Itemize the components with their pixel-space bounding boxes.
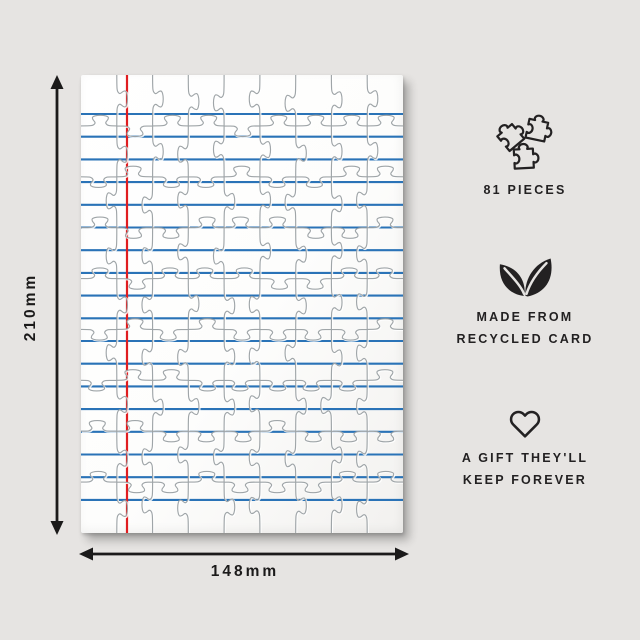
leaf-icon	[496, 256, 554, 299]
arrowhead-right	[395, 548, 409, 561]
arrowhead-up	[51, 75, 64, 89]
feature-piece-count: 81 PIECES	[437, 106, 613, 201]
cut-lines	[81, 75, 403, 533]
puzzle-product-image	[81, 75, 403, 533]
feature-text-line: KEEP FOREVER	[462, 469, 588, 491]
height-arrow	[45, 74, 69, 536]
feature-text-line: RECYCLED CARD	[457, 328, 594, 350]
feature-gift: A GIFT THEY'LL KEEP FOREVER	[437, 408, 613, 491]
feature-recycled: MADE FROM RECYCLED CARD	[437, 256, 613, 350]
cut-line-highlights	[82, 76, 403, 533]
height-dimension-label: 210mm	[22, 273, 40, 341]
puzzle-pieces-icon	[490, 106, 560, 172]
jigsaw-notebook-paper	[81, 75, 403, 533]
arrowhead-left	[79, 548, 93, 561]
arrowhead-down	[51, 521, 64, 535]
heart-icon	[508, 408, 542, 440]
feature-text-line: 81 PIECES	[483, 179, 566, 201]
product-infographic: 210mm 148mm 81 PIECES	[0, 0, 640, 640]
feature-text-line: A GIFT THEY'LL	[462, 447, 588, 469]
width-dimension-label: 148mm	[211, 563, 279, 581]
feature-caption: A GIFT THEY'LL KEEP FOREVER	[462, 447, 588, 491]
feature-caption: 81 PIECES	[483, 179, 566, 201]
feature-text-line: MADE FROM	[457, 306, 594, 328]
feature-list: 81 PIECES MADE FROM RECYCLED CARD A GIFT…	[437, 0, 613, 640]
feature-caption: MADE FROM RECYCLED CARD	[457, 306, 594, 350]
